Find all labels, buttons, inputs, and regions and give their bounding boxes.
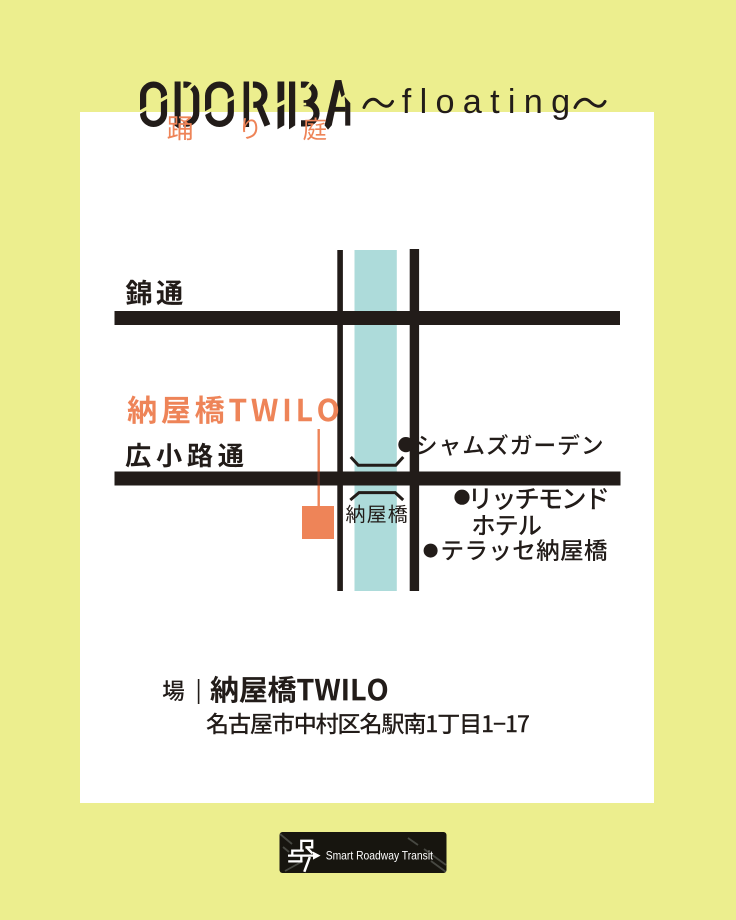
svg-text:Smart Roadway Transit: Smart Roadway Transit <box>326 848 434 862</box>
svg-text:floating: floating <box>402 83 579 121</box>
